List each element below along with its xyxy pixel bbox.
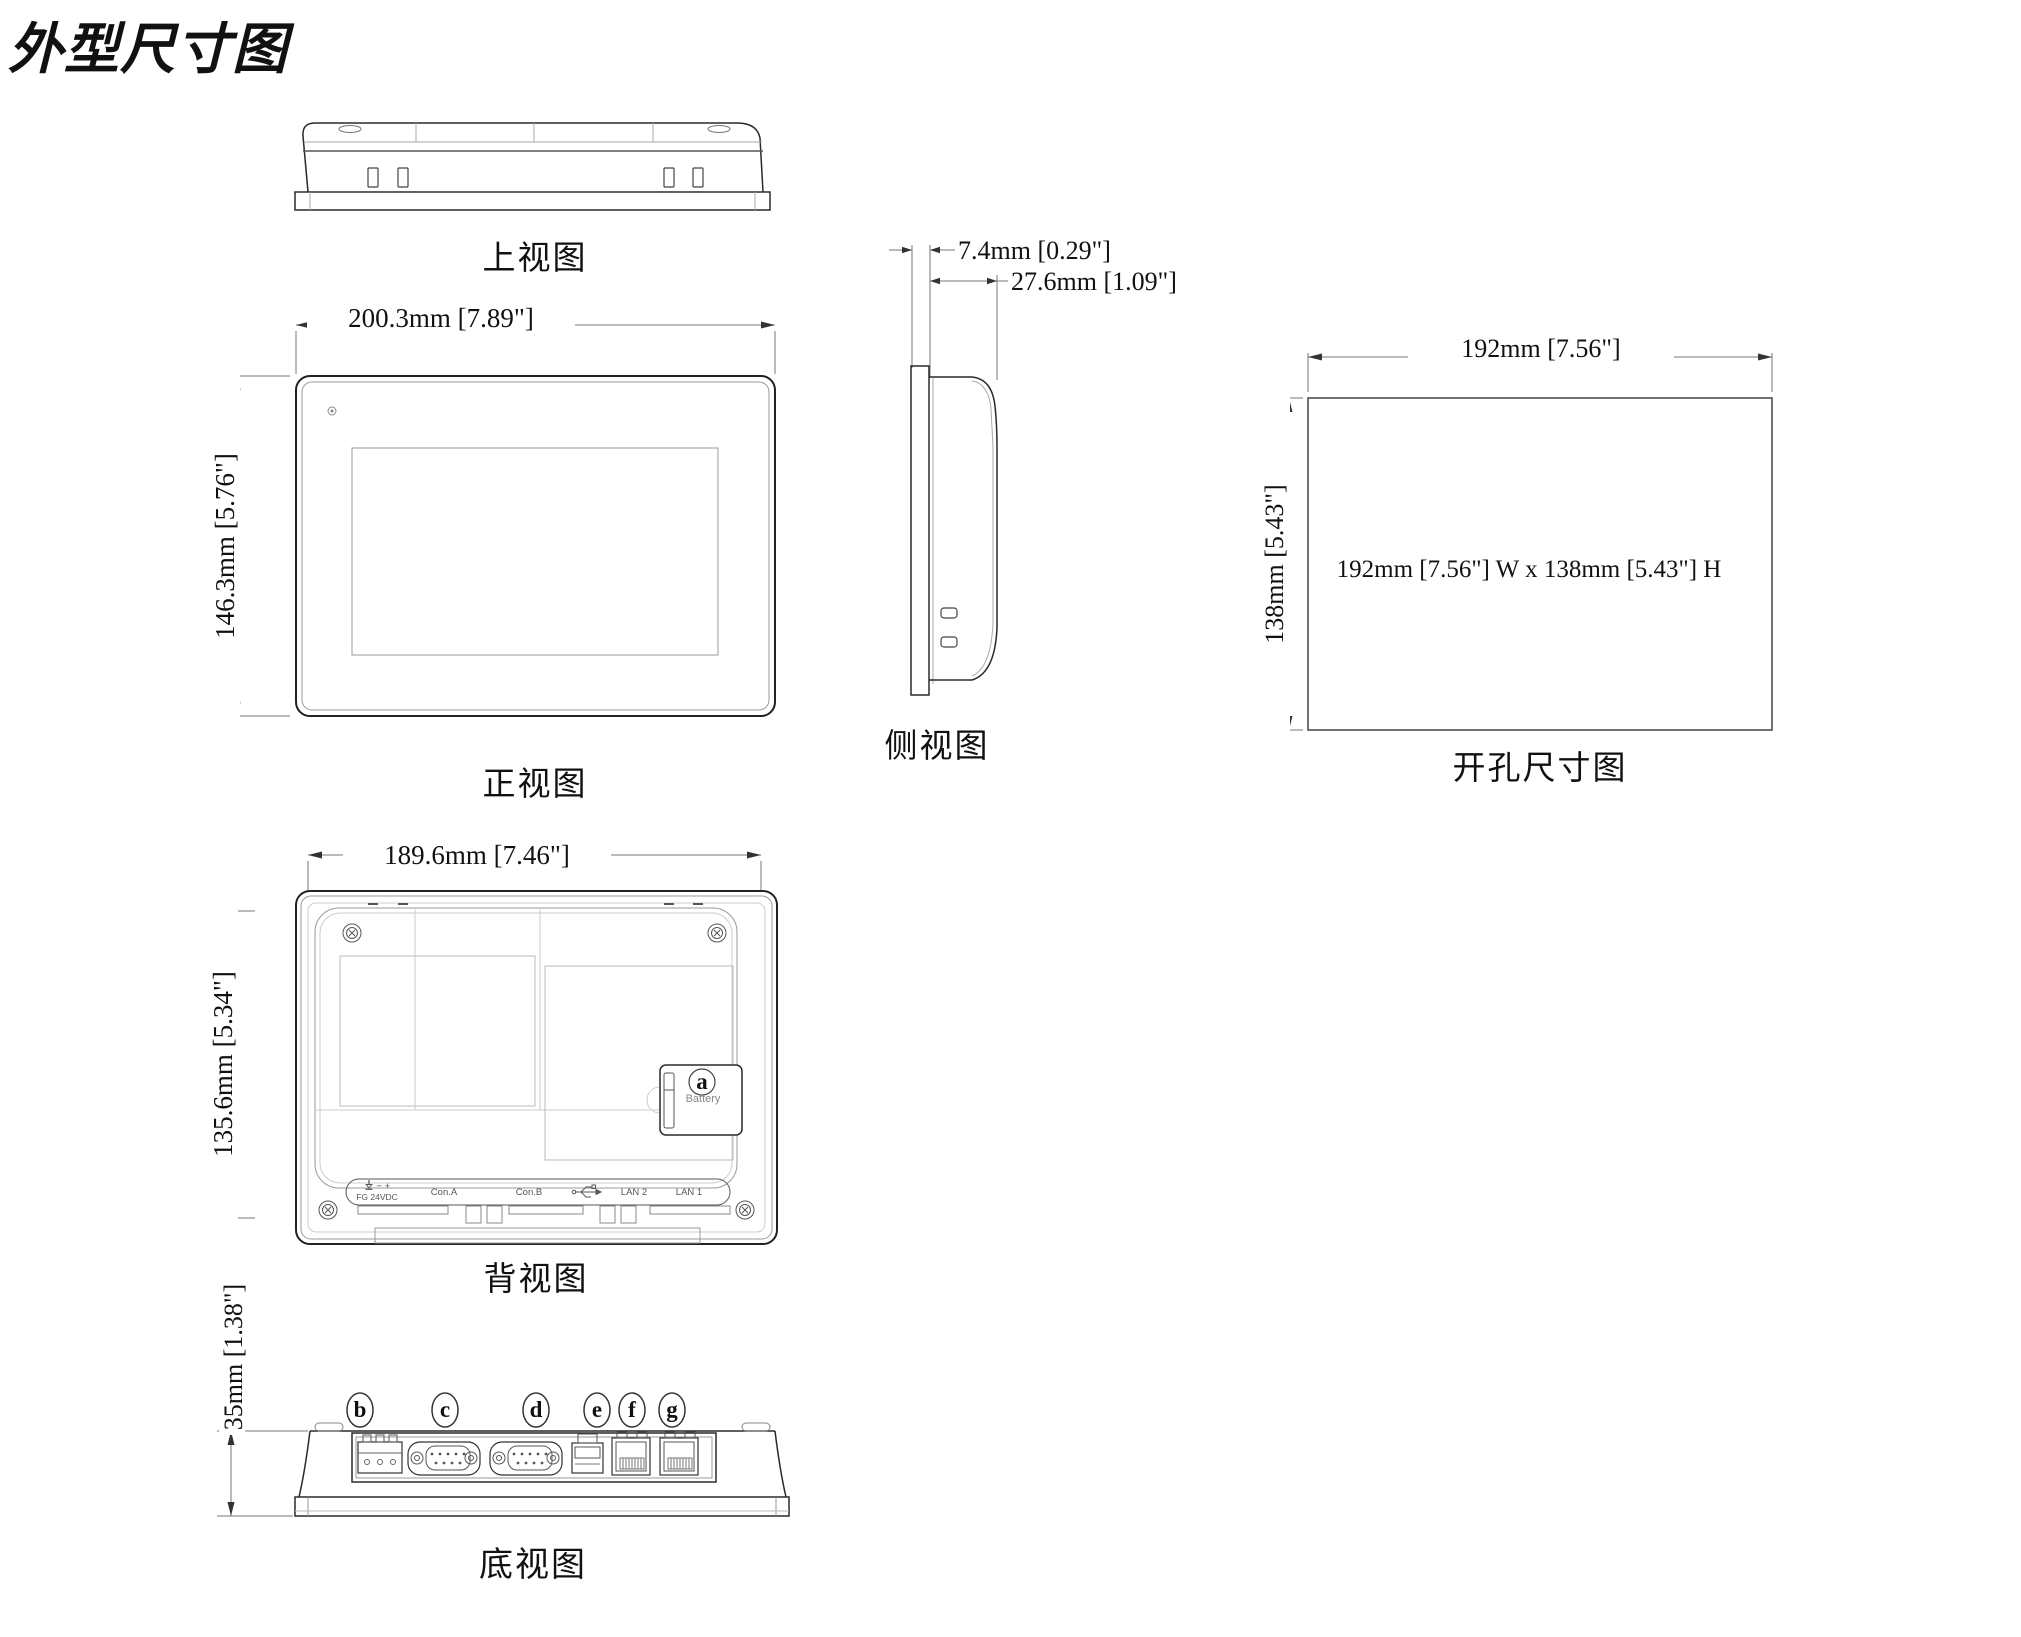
cutout-note: 192mm [7.56"] W x 138mm [5.43"] H [1319,556,1739,584]
rear-height-dimension: 135.6mm [5.34"] [208,890,238,1238]
db9-connector-icon [490,1442,562,1475]
rear-cover-panel [315,908,737,1188]
screw-icon [736,1201,754,1219]
page-title: 外型尺寸图 [8,4,288,84]
top-view-label: 上视图 [435,231,635,279]
side-body [929,377,997,680]
screw-icon [708,924,726,942]
lan2-label: LAN 2 [604,1187,664,1198]
front-view-drawing [210,300,810,800]
top-vent-slot-icon [708,126,730,133]
screw-icon [319,1201,337,1219]
bottom-height-dimension: 35mm [1.38"] [219,1279,245,1435]
touch-screen-area [352,448,718,655]
con-b-label: Con.B [499,1187,559,1198]
callout-letter-c: c [430,1396,460,1424]
led-indicator-dot [331,410,334,413]
callout-letter-b: b [345,1396,375,1424]
lan1-label: LAN 1 [659,1187,719,1198]
callout-letter-d: d [521,1396,551,1424]
top-view-drawing [285,88,790,215]
power-terminal-label: − + FG 24VDC [346,1180,408,1203]
callout-letter-f: f [617,1396,647,1424]
front-view-label: 正视图 [435,757,635,805]
side-view-drawing [885,238,1075,708]
callout-letter-g: g [657,1396,687,1424]
battery-label: Battery [663,1093,743,1105]
rj45-port-icon [660,1432,698,1475]
cutout-view-label: 开孔尺寸图 [1400,741,1680,789]
screw-icon [343,924,361,942]
side-bezel [911,366,929,695]
power-connector-icon [358,1435,402,1473]
usb-port-icon [572,1434,603,1473]
dimension-drawing-page: 外型尺寸图 上视图 200.3mm [7. [0,0,2021,1637]
db9-connector-icon [408,1442,480,1475]
side-depth-dimension: 27.6mm [1.09"] [1008,267,1180,297]
bottom-view-drawing [215,1290,815,1530]
usb-icon [572,1185,601,1197]
front-width-dimension: 200.3mm [7.89"] [307,303,575,334]
power-symbols-row: − + [346,1180,408,1192]
rj45-port-icon [612,1432,650,1475]
minus-symbol: − [376,1181,382,1192]
con-a-label: Con.A [414,1187,474,1198]
side-bezel-dimension: 7.4mm [0.29"] [955,236,1114,266]
battery-callout-letter: a [686,1068,718,1096]
rear-width-dimension: 189.6mm [7.46"] [343,840,611,871]
cutout-width-dimension: 192mm [7.56"] [1408,334,1674,364]
plus-symbol: + [385,1181,391,1192]
ground-icon [364,1180,374,1190]
top-vent-slot-icon [339,126,361,133]
side-view-label: 侧视图 [837,719,1037,767]
power-label: FG 24VDC [346,1192,408,1203]
callout-letter-e: e [582,1396,612,1424]
cutout-view-drawing [1245,330,1805,750]
cutout-height-dimension: 138mm [5.43"] [1260,391,1290,737]
bottom-view-label: 底视图 [433,1537,633,1586]
front-height-dimension: 146.3mm [5.76"] [210,372,240,720]
